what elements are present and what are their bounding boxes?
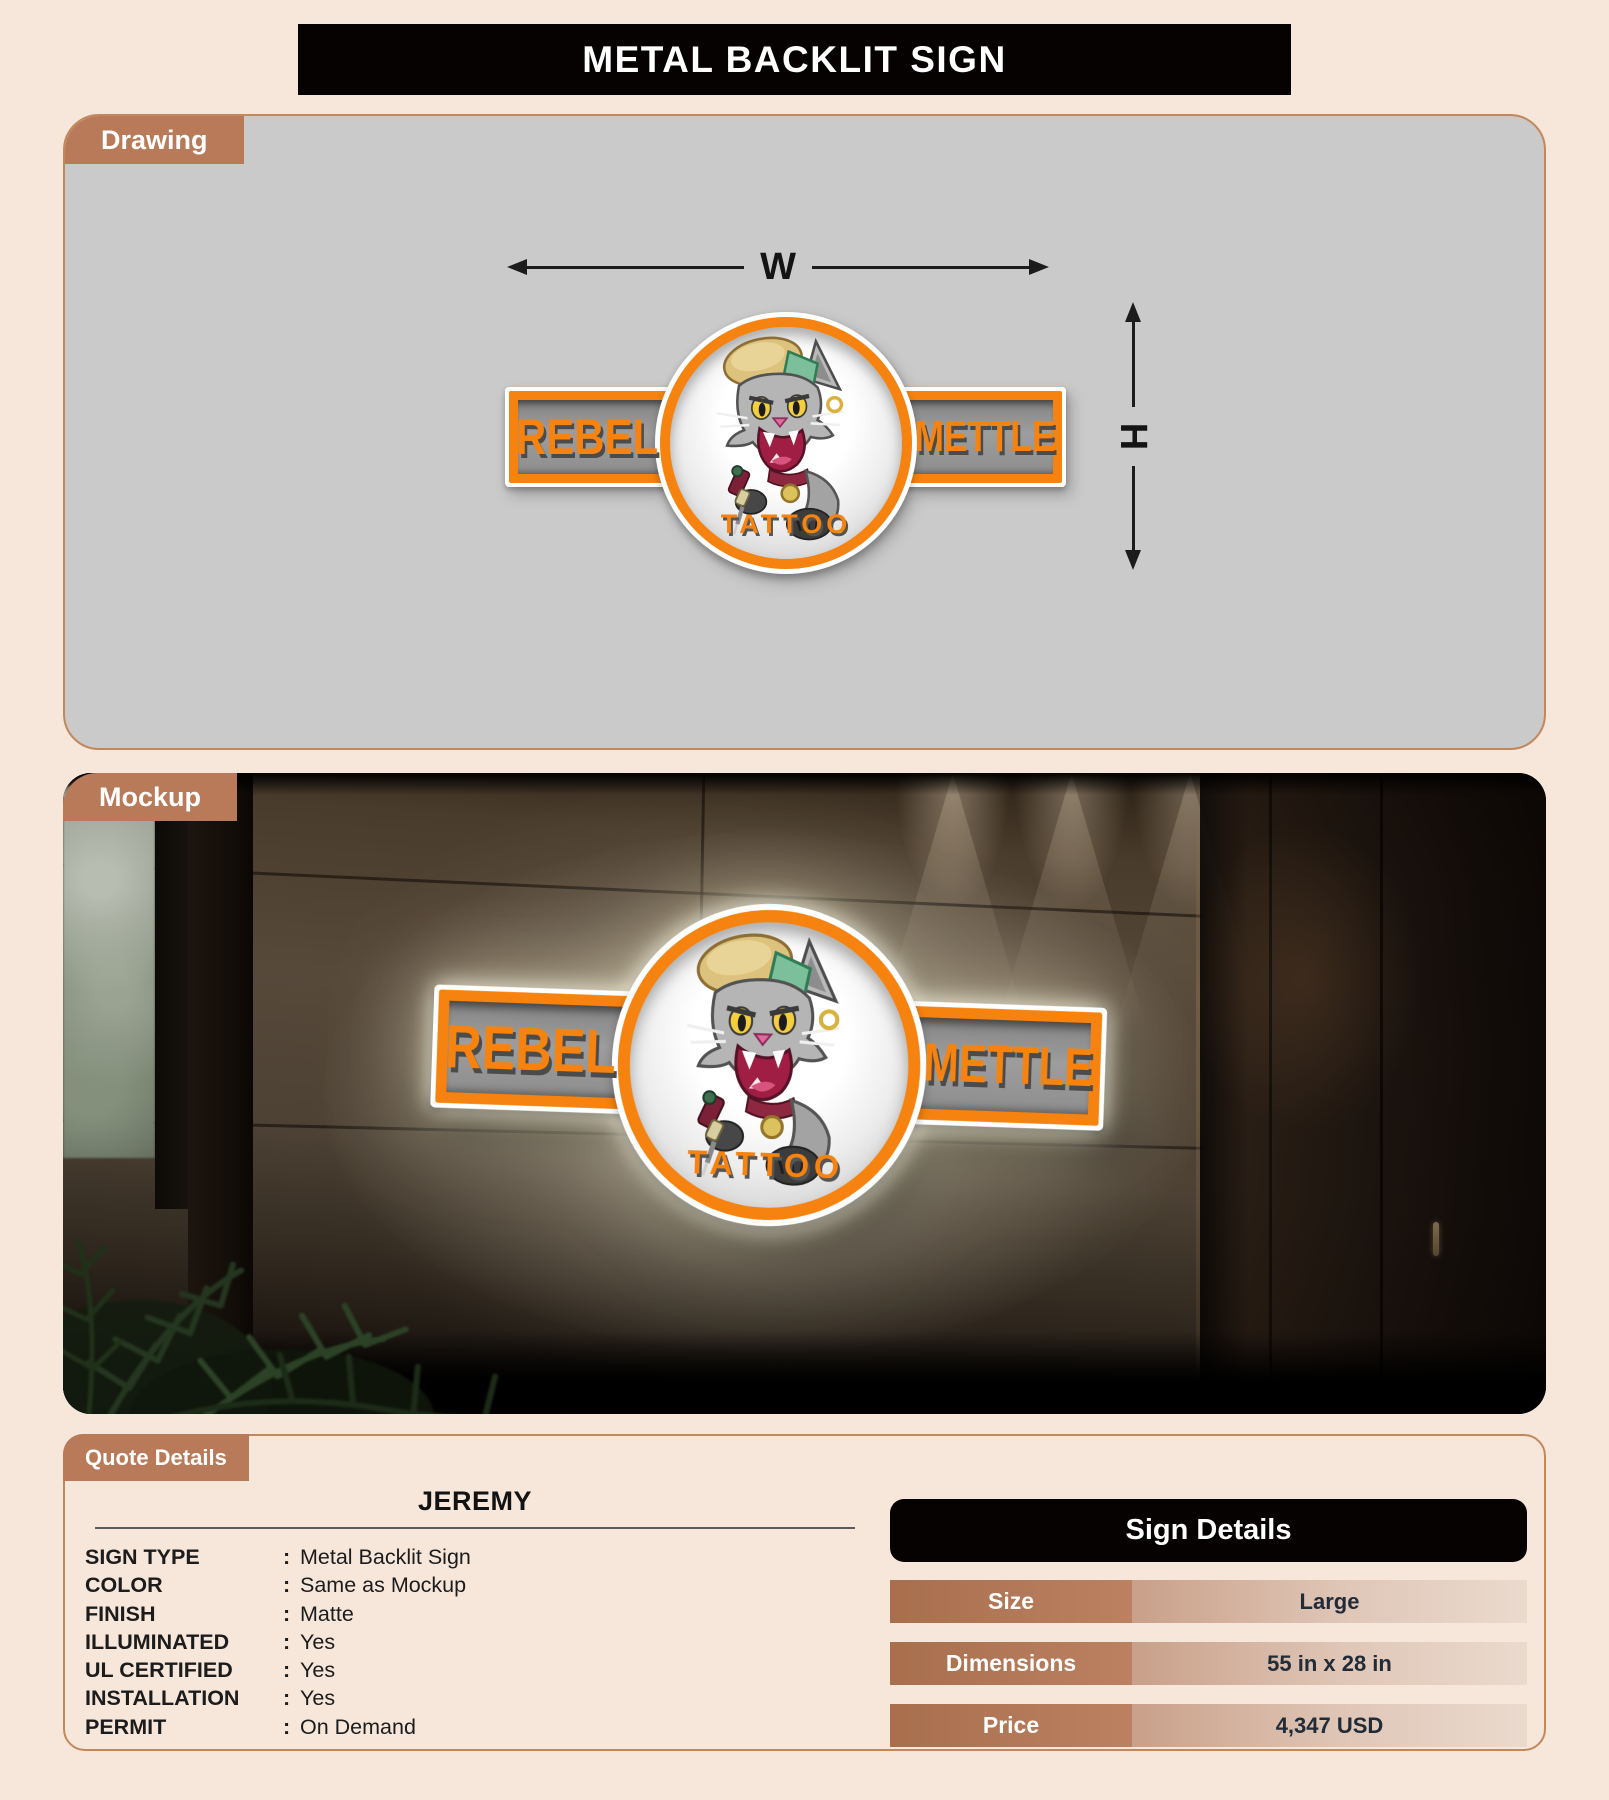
table-row: Dimensions 55 in x 28 in — [890, 1642, 1527, 1685]
quote-row-label: PERMIT — [85, 1713, 283, 1741]
colon: : — [283, 1656, 300, 1684]
quote-row: PERMIT : On Demand — [85, 1713, 865, 1741]
logo-badge-drawing: REBEL METTLE — [505, 312, 1066, 574]
quote-row-label: ILLUMINATED — [85, 1628, 283, 1656]
colon: : — [283, 1543, 300, 1571]
door-panel — [1200, 773, 1546, 1414]
quote-rows: SIGN TYPE : Metal Backlit Sign COLOR : S… — [85, 1543, 865, 1741]
quote-row: FINISH : Matte — [85, 1600, 865, 1628]
colon: : — [283, 1684, 300, 1712]
dimension-line — [812, 266, 1029, 269]
quote-row-label: SIGN TYPE — [85, 1543, 283, 1571]
ceiling-shadow — [63, 773, 1546, 795]
quote-row: INSTALLATION : Yes — [85, 1684, 865, 1712]
dimension-line — [1132, 322, 1135, 407]
quote-row-value: On Demand — [300, 1713, 865, 1741]
height-dimension-arrow: H — [1111, 302, 1155, 570]
quote-details-tab: Quote Details — [63, 1434, 249, 1481]
quote-row-label: FINISH — [85, 1600, 283, 1628]
colon: : — [283, 1713, 300, 1741]
door-handle — [1433, 1222, 1439, 1256]
quote-row: COLOR : Same as Mockup — [85, 1571, 865, 1599]
dimension-line — [527, 266, 744, 269]
height-label: H — [1111, 422, 1154, 449]
sign-details-table: Sign Details Size Large Dimensions 55 in… — [890, 1499, 1527, 1766]
width-dimension-arrow: W — [507, 243, 1049, 291]
table-row-label: Size — [890, 1580, 1132, 1623]
mockup-tab: Mockup — [63, 773, 237, 821]
divider — [95, 1527, 855, 1529]
door-seam — [1269, 773, 1272, 1414]
quote-row: ILLUMINATED : Yes — [85, 1628, 865, 1656]
arrow-left-icon — [507, 259, 527, 275]
badge-text-left: REBEL — [528, 396, 646, 478]
page-title: METAL BACKLIT SIGN — [582, 39, 1006, 81]
quote-row-label: COLOR — [85, 1571, 283, 1599]
drawing-tab-label: Drawing — [101, 125, 208, 156]
quote-row-value: Yes — [300, 1684, 865, 1712]
table-row: Price 4,347 USD — [890, 1704, 1527, 1747]
table-row-label: Dimensions — [890, 1642, 1132, 1685]
quote-sheet-page: METAL BACKLIT SIGN Drawing W H REBEL — [0, 0, 1609, 1800]
colon: : — [283, 1571, 300, 1599]
quote-row: UL CERTIFIED : Yes — [85, 1656, 865, 1684]
badge-text-right: METTLE — [937, 1013, 1079, 1119]
drawing-tab: Drawing — [65, 116, 244, 164]
quote-row-value: Yes — [300, 1628, 865, 1656]
quote-row-label: UL CERTIFIED — [85, 1656, 283, 1684]
quote-row-value: Metal Backlit Sign — [300, 1543, 865, 1571]
drawing-panel: Drawing W H REBEL METTLE — [63, 114, 1546, 750]
table-row-value: Large — [1132, 1580, 1527, 1623]
quote-row: SIGN TYPE : Metal Backlit Sign — [85, 1543, 865, 1571]
table-row-value: 55 in x 28 in — [1132, 1642, 1527, 1685]
quote-row-value: Matte — [300, 1600, 865, 1628]
plant-icon — [63, 1094, 597, 1415]
mockup-panel: REBEL METTLE — [63, 773, 1546, 1414]
arrow-right-icon — [1029, 259, 1049, 275]
badge-text-bottom: TATTOO — [655, 509, 917, 540]
table-row-label: Price — [890, 1704, 1132, 1747]
door-seam — [1380, 773, 1383, 1414]
badge-text-left: REBEL — [458, 996, 603, 1102]
customer-name: JEREMY — [85, 1486, 865, 1517]
arrow-down-icon — [1125, 550, 1141, 570]
quote-row-label: INSTALLATION — [85, 1684, 283, 1712]
width-label: W — [760, 246, 796, 289]
colon: : — [283, 1628, 300, 1656]
customer-block: JEREMY SIGN TYPE : Metal Backlit Sign CO… — [85, 1486, 865, 1741]
sign-details-header: Sign Details — [890, 1499, 1527, 1562]
quote-row-value: Yes — [300, 1656, 865, 1684]
quote-details-panel: Quote Details JEREMY SIGN TYPE : Metal B… — [63, 1434, 1546, 1751]
dimension-line — [1132, 466, 1135, 551]
quote-row-value: Same as Mockup — [300, 1571, 865, 1599]
arrow-up-icon — [1125, 302, 1141, 322]
colon: : — [283, 1600, 300, 1628]
table-row: Size Large — [890, 1580, 1527, 1623]
mockup-tab-label: Mockup — [99, 782, 201, 813]
badge-text-right: METTLE — [927, 396, 1042, 478]
table-row-value: 4,347 USD — [1132, 1704, 1527, 1747]
page-title-bar: METAL BACKLIT SIGN — [298, 24, 1291, 95]
quote-details-tab-label: Quote Details — [85, 1445, 227, 1471]
